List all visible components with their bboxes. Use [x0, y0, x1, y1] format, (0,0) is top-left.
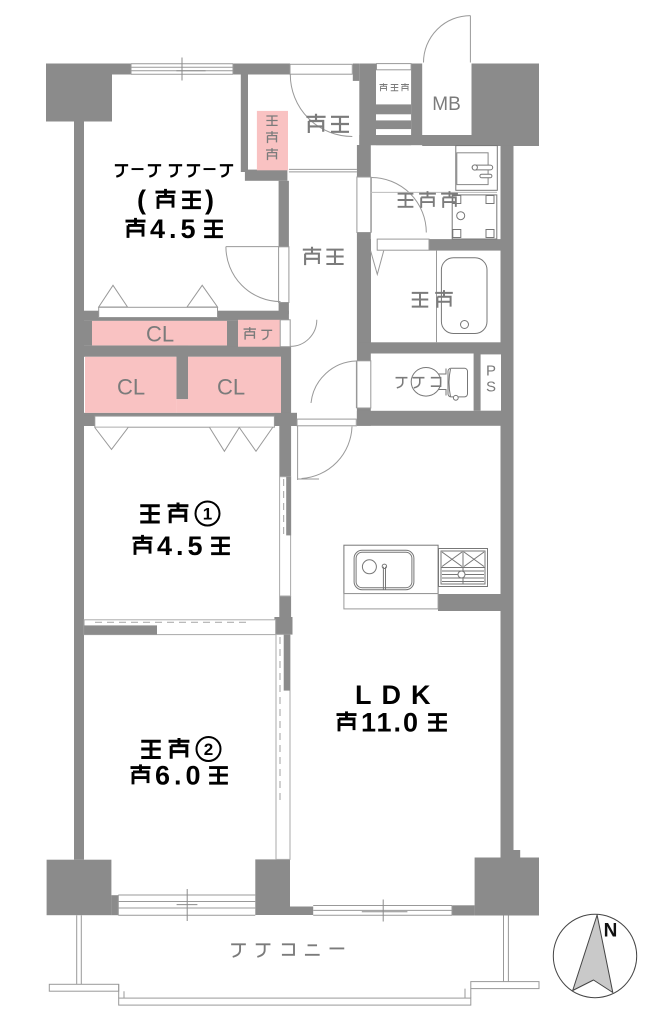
svg-text:6.0: 6.0	[155, 761, 205, 791]
svg-text:(: (	[137, 185, 146, 215]
svg-text:P: P	[486, 363, 496, 380]
svg-text:4.5: 4.5	[157, 531, 207, 561]
svg-text:11.0: 11.0	[361, 708, 420, 738]
svg-text:1: 1	[203, 505, 212, 524]
svg-text:N: N	[604, 921, 618, 942]
svg-text:): )	[205, 185, 214, 215]
svg-text:LDK: LDK	[355, 680, 441, 710]
svg-text:MB: MB	[432, 94, 461, 115]
svg-text:CL: CL	[146, 322, 174, 347]
svg-text:CL: CL	[217, 375, 245, 400]
svg-text:2: 2	[204, 740, 213, 759]
svg-text:CL: CL	[117, 375, 145, 400]
svg-text:S: S	[486, 379, 496, 396]
svg-text:4.5: 4.5	[150, 214, 200, 244]
